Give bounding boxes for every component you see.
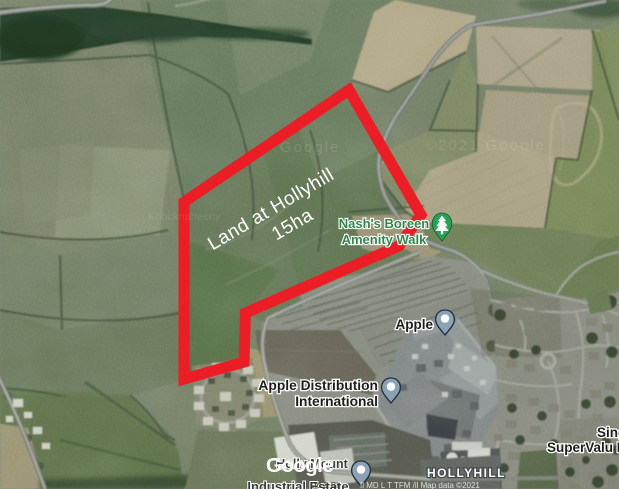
svg-text:International: International bbox=[295, 394, 378, 409]
svg-text:Google: Google bbox=[280, 139, 340, 156]
svg-text:Apple: Apple bbox=[395, 317, 433, 332]
svg-text:SuperValu H: SuperValu H bbox=[547, 440, 619, 455]
svg-text:Google: Google bbox=[266, 454, 333, 477]
svg-text:Knocknaheeny: Knocknaheeny bbox=[148, 211, 221, 223]
svg-text:HOLLYHILL: HOLLYHILL bbox=[427, 466, 506, 480]
svg-text:©2021 Google: ©2021 Google bbox=[425, 137, 546, 154]
svg-text:Ltd & Bl: Ltd & Bl bbox=[310, 481, 338, 489]
svg-text:Nash's Boreen: Nash's Boreen bbox=[339, 216, 430, 231]
svg-text:Sing: Sing bbox=[597, 425, 619, 440]
svg-text:Amenity Walk: Amenity Walk bbox=[342, 232, 428, 247]
svg-text:Il MD L T TFM /il Map data ©20: Il MD L T TFM /il Map data ©2021 bbox=[360, 481, 480, 489]
svg-text:Apple Distribution: Apple Distribution bbox=[258, 378, 378, 393]
